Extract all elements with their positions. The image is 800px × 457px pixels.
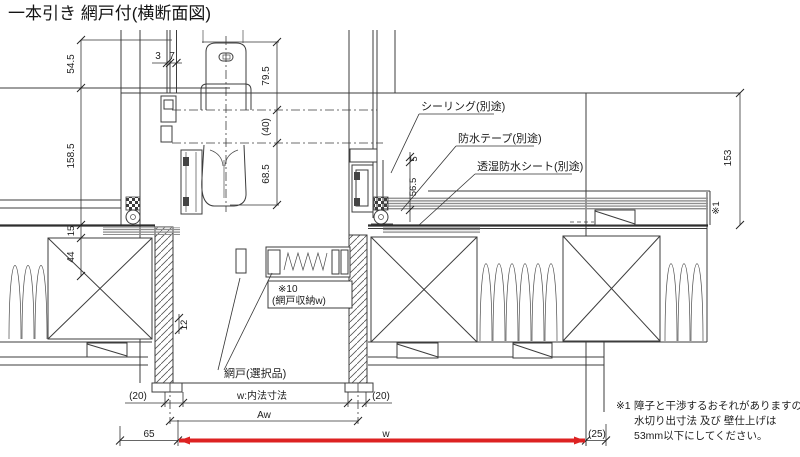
insulation-batt-left [9,266,47,340]
insulation-batt-right1 [480,264,557,341]
stud-section-left [48,238,152,339]
dim-158-5: 158.5 [66,143,77,168]
furring-band-right [383,227,480,234]
dim-20-left: (20) [129,391,147,402]
drawing-title: 一本引き 網戸付(横断面図) [8,4,211,23]
dim-20-right: (20) [372,391,390,402]
sheet-callout: 透湿防水シート(別途) [477,159,583,173]
dim-56-5: 56.5 [408,178,419,197]
dim-12: 12 [179,320,190,331]
dim-44: 44 [66,251,77,263]
annotation-texts: 一本引き 網戸付(横断面図) シーリング(別途) 防水テープ(別途) 透湿防水シ… [8,4,800,442]
dim-65: 65 [143,429,155,440]
dim-3: 3 [155,51,161,62]
dim-54-5: 54.5 [66,54,77,74]
note-ref: ※1 [616,400,631,412]
stud-section-right1 [371,237,477,342]
stud-section-right2 [563,236,660,341]
note-line1: 障子と干渉するおそれがありますので [634,399,800,412]
furring-band-left [103,227,180,235]
insulation-batt-right3 [665,264,703,341]
frame-cap-right [345,383,373,392]
dim-aw: Aw [257,410,271,421]
siding-band-right [383,197,708,210]
screen-callout: 網戸(選択品) [224,366,286,380]
dim-15: 15 [66,226,77,237]
anchor-block-left [126,197,140,210]
frame-cap-left [152,383,182,392]
screen-storage-label: (網戸収納w) [272,294,326,307]
dim-w: w [381,429,390,440]
trim-strip-left [155,227,173,383]
wall-ref-label: ※1 [711,201,722,214]
sealing-callout: シーリング(別途) [421,99,505,113]
dim-7: 7 [169,51,175,62]
roller-right [374,210,388,224]
note-line3: 53mm以下にしてください。 [634,430,768,442]
note-line2: 水切り出寸法 及び 壁仕上げは [634,414,776,427]
roller-left [126,210,140,224]
screen-storage-ref: ※10 [278,284,298,295]
dim-79-5: 79.5 [261,66,272,86]
cross-section-drawing: 一本引き 網戸付(横断面図) シーリング(別途) 防水テープ(別途) 透湿防水シ… [0,0,800,457]
drawing-page: 一本引き 網戸付(横断面図) シーリング(別途) 防水テープ(別途) 透湿防水シ… [0,0,800,457]
dim-w-inner: w:内法寸法 [236,389,287,402]
trim-strip-right [349,235,367,383]
dim-5: 5 [409,156,420,161]
tape-callout: 防水テープ(別途) [458,131,542,145]
dim-153: 153 [723,149,734,166]
anchor-block-right [374,197,388,210]
dim-40: (40) [261,118,272,136]
dim-68-5: 68.5 [261,164,272,184]
dim-25: (25) [588,429,606,440]
